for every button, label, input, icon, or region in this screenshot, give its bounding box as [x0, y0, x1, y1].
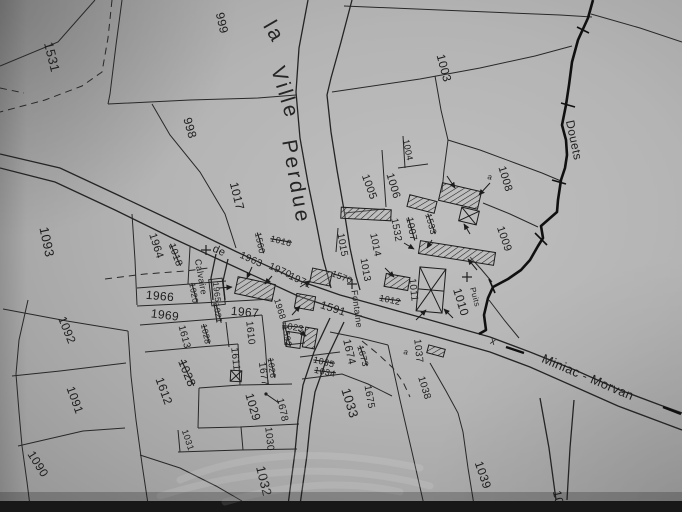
parcel-number-label: 1030 — [262, 427, 275, 452]
svg-text:1029: 1029 — [242, 391, 263, 422]
road-edge-line — [540, 398, 556, 500]
parcel-boundary-line — [132, 214, 137, 305]
leader-dot — [264, 392, 267, 395]
parcel-boundary-line — [430, 363, 474, 505]
parcel-number-label: 1674 — [340, 338, 358, 366]
svg-text:Puits: Puits — [468, 286, 482, 307]
parcel-number-label: 1964 — [146, 232, 165, 261]
svg-text:a: a — [486, 172, 493, 182]
parcel-number-label: 1533 — [423, 212, 438, 235]
svg-text:1004: 1004 — [401, 138, 415, 161]
parcel-number-label: 1678 — [274, 397, 290, 423]
svg-text:1090: 1090 — [25, 448, 52, 479]
leader-arrow — [479, 183, 490, 195]
svg-text:1011: 1011 — [406, 278, 419, 302]
cross-icon — [201, 245, 211, 255]
parcel-boundary-line — [12, 363, 126, 376]
svg-text:1015: 1015 — [335, 232, 350, 257]
svg-text:1009: 1009 — [494, 225, 514, 254]
parcel-boundary-line — [16, 300, 30, 506]
svg-text:1005: 1005 — [359, 173, 379, 202]
map-labels: laVillePerdueDouetsMiniac - MorvanCalvai… — [25, 11, 637, 512]
road-continuation-dash — [506, 347, 524, 353]
parcel-number-label: 1591 — [319, 299, 348, 318]
parcel-number-label: 1090 — [25, 448, 52, 479]
svg-text:1031: 1031 — [180, 428, 196, 452]
parcel-number-label: 1037 — [411, 339, 424, 364]
parcel-number-label: 1039 — [472, 459, 494, 490]
parcel-boundary-line — [435, 76, 448, 140]
svg-text:1092: 1092 — [55, 314, 79, 345]
svg-text:1675: 1675 — [362, 384, 377, 409]
parcel-boundary-line — [178, 430, 180, 452]
road-edge-line — [300, 322, 344, 505]
svg-text:1006: 1006 — [383, 172, 402, 200]
parcel-boundary-line — [178, 449, 297, 452]
building-hatched — [427, 345, 445, 357]
parcel-number-label: 1612 — [153, 375, 176, 406]
cadastral-map-photo: laVillePerdueDouetsMiniac - MorvanCalvai… — [0, 0, 682, 512]
parcel-boundary-line — [198, 424, 299, 428]
parcel-number-label: 1091 — [64, 384, 87, 415]
svg-text:1969: 1969 — [150, 306, 180, 323]
parcel-number-label: 1560 — [253, 231, 267, 254]
photo-edge-shadow — [0, 492, 682, 502]
parcel-number-label: a — [402, 347, 409, 357]
parcel-number-label: 1613 — [176, 324, 193, 350]
parcel-number-label: 1028 — [199, 323, 213, 345]
parcel-number-label: 1038 — [415, 375, 433, 401]
parcel-number-label: 1015 — [335, 232, 350, 257]
parcel-number-label: 1570 — [330, 268, 354, 285]
parcel-number-label: 1012 — [378, 293, 401, 307]
parcel-number-label: 1966 — [145, 288, 174, 304]
svg-text:1971: 1971 — [287, 271, 313, 291]
place-name-label: Perdue — [277, 138, 315, 226]
svg-text:1003: 1003 — [434, 53, 455, 84]
parcel-number-label: 1008 — [495, 165, 514, 193]
stream-tick — [561, 103, 575, 107]
svg-text:999: 999 — [213, 11, 231, 35]
svg-text:1613: 1613 — [176, 324, 193, 350]
parcel-number-label: a — [486, 172, 493, 182]
building-hatched — [310, 268, 332, 286]
photo-artifacts — [0, 456, 682, 512]
building-crossed — [459, 207, 480, 225]
parcel-number-label: 1532 — [388, 217, 403, 243]
svg-text:1532: 1532 — [388, 217, 403, 243]
parcel-number-label: 1968 — [272, 297, 288, 321]
dashed-limit-line — [0, 88, 24, 93]
parcel-boundary-line — [344, 6, 592, 17]
parcel-number-label: 1010 — [450, 286, 472, 317]
parcel-boundary-line — [18, 428, 125, 446]
svg-text:a: a — [402, 347, 409, 357]
parcel-number-label: 1531 — [41, 40, 63, 73]
building-crossed — [416, 267, 446, 313]
cross-icon — [462, 272, 472, 282]
svg-text:1038: 1038 — [415, 375, 433, 401]
svg-text:1037: 1037 — [411, 339, 424, 364]
place-name-label: Ville — [266, 64, 304, 123]
building-hatched — [235, 277, 276, 302]
parcel-number-label: 1007 — [403, 216, 418, 242]
svg-text:1008: 1008 — [495, 165, 514, 193]
building-hatched — [341, 207, 392, 221]
parcel-number-label: 1971 — [287, 271, 313, 291]
svg-text:1966: 1966 — [145, 288, 174, 304]
svg-text:1674: 1674 — [340, 338, 358, 366]
parcel-boundary-line — [198, 388, 199, 428]
svg-text:1610: 1610 — [243, 321, 256, 346]
parcel-number-label: 1004 — [401, 138, 415, 161]
parcel-number-label: 1673 — [355, 344, 370, 367]
parcel-number-label: 1029 — [242, 391, 263, 422]
svg-text:1678: 1678 — [274, 397, 290, 423]
parcel-number-label: 1020 — [187, 282, 200, 304]
road-continuation-dash — [663, 407, 681, 414]
building-hatched — [407, 195, 437, 213]
parcel-boundary-line — [226, 322, 229, 347]
parcel-number-label: 1031 — [180, 428, 196, 452]
parcel-number-label: 1006 — [383, 172, 402, 200]
parcel-number-label: 1018 — [166, 242, 185, 268]
svg-text:1014: 1014 — [367, 232, 383, 258]
parcel-boundary-line — [199, 384, 292, 388]
svg-text:1611: 1611 — [228, 347, 241, 371]
parcel-number-label: 1969 — [150, 306, 180, 323]
building-hatched — [438, 183, 481, 210]
parcel-number-label: 1005 — [359, 173, 379, 202]
building-hatched — [418, 241, 495, 266]
leader-arrow — [444, 309, 453, 318]
parcel-boundary-line — [483, 203, 538, 227]
parcel-boundary-line — [128, 331, 148, 504]
svg-text:1591: 1591 — [319, 299, 348, 318]
parcel-boundary-line — [489, 300, 519, 338]
parcel-number-label: 1013 — [358, 257, 373, 282]
parcel-number-label: 1967 — [230, 304, 259, 320]
svg-text:1612: 1612 — [153, 375, 176, 406]
parcel-number-label: 999 — [213, 11, 231, 35]
svg-text:1030: 1030 — [262, 427, 275, 452]
road-edge-line — [567, 400, 574, 500]
parcel-number-label: 1093 — [36, 226, 57, 259]
svg-text:1967: 1967 — [230, 304, 259, 320]
parcel-boundary-line — [108, 95, 296, 104]
parcel-boundary-line — [398, 164, 428, 168]
parcel-boundary-line — [188, 247, 190, 284]
parcel-boundary-line — [591, 14, 682, 42]
svg-text:Ville: Ville — [266, 64, 304, 123]
photo-bottom-edge — [0, 501, 682, 512]
parcel-number-label: 1014 — [367, 232, 383, 258]
parcel-number-label: 1017 — [227, 181, 247, 212]
svg-text:1531: 1531 — [41, 40, 63, 73]
svg-text:1017: 1017 — [227, 181, 247, 212]
svg-text:1013: 1013 — [358, 257, 373, 282]
svg-text:Fontaine: Fontaine — [349, 289, 364, 328]
building-hatched — [302, 327, 317, 349]
parcel-number-label: 1011 — [406, 278, 419, 302]
feature-label: Fontaine — [349, 289, 364, 328]
parcel-number-label: 1021 — [211, 302, 224, 324]
stream-line — [479, 0, 593, 334]
leader-arrow — [404, 243, 414, 249]
road-label: x — [489, 336, 498, 348]
svg-text:1091: 1091 — [64, 384, 87, 415]
feature-label: Puits — [468, 286, 482, 307]
svg-text:la: la — [258, 17, 289, 48]
parcel-number-label: 1016 — [269, 233, 292, 248]
leader-arrow — [464, 224, 470, 234]
svg-text:1964: 1964 — [146, 232, 165, 261]
parcel-number-label: 1610 — [243, 321, 256, 346]
svg-text:998: 998 — [180, 116, 199, 140]
svg-text:x: x — [489, 336, 498, 348]
parcel-number-label: 1092 — [55, 314, 79, 345]
svg-text:Perdue: Perdue — [277, 138, 315, 226]
parcel-boundary-line — [241, 427, 243, 450]
stream-douets — [479, 0, 593, 334]
dashed-limit-line — [105, 268, 208, 279]
parcel-number-label: 1033 — [338, 386, 361, 420]
svg-text:1010: 1010 — [450, 286, 472, 317]
parcel-number-label: 1675 — [362, 384, 377, 409]
svg-text:1093: 1093 — [36, 226, 57, 259]
svg-text:1968: 1968 — [272, 297, 288, 321]
parcel-boundary-line — [262, 315, 265, 342]
cadastral-map: laVillePerdueDouetsMiniac - MorvanCalvai… — [0, 0, 682, 512]
svg-text:1039: 1039 — [472, 459, 494, 490]
parcel-number-label: 1003 — [434, 53, 455, 84]
parcel-number-label: 998 — [180, 116, 199, 140]
place-name-label: la — [258, 17, 289, 48]
building-hatched — [384, 274, 410, 291]
parcel-number-label: 1009 — [494, 225, 514, 254]
parcel-number-label: 1028 — [175, 357, 199, 389]
parcel-number-label: 1611 — [228, 347, 241, 371]
svg-text:1033: 1033 — [338, 386, 361, 420]
